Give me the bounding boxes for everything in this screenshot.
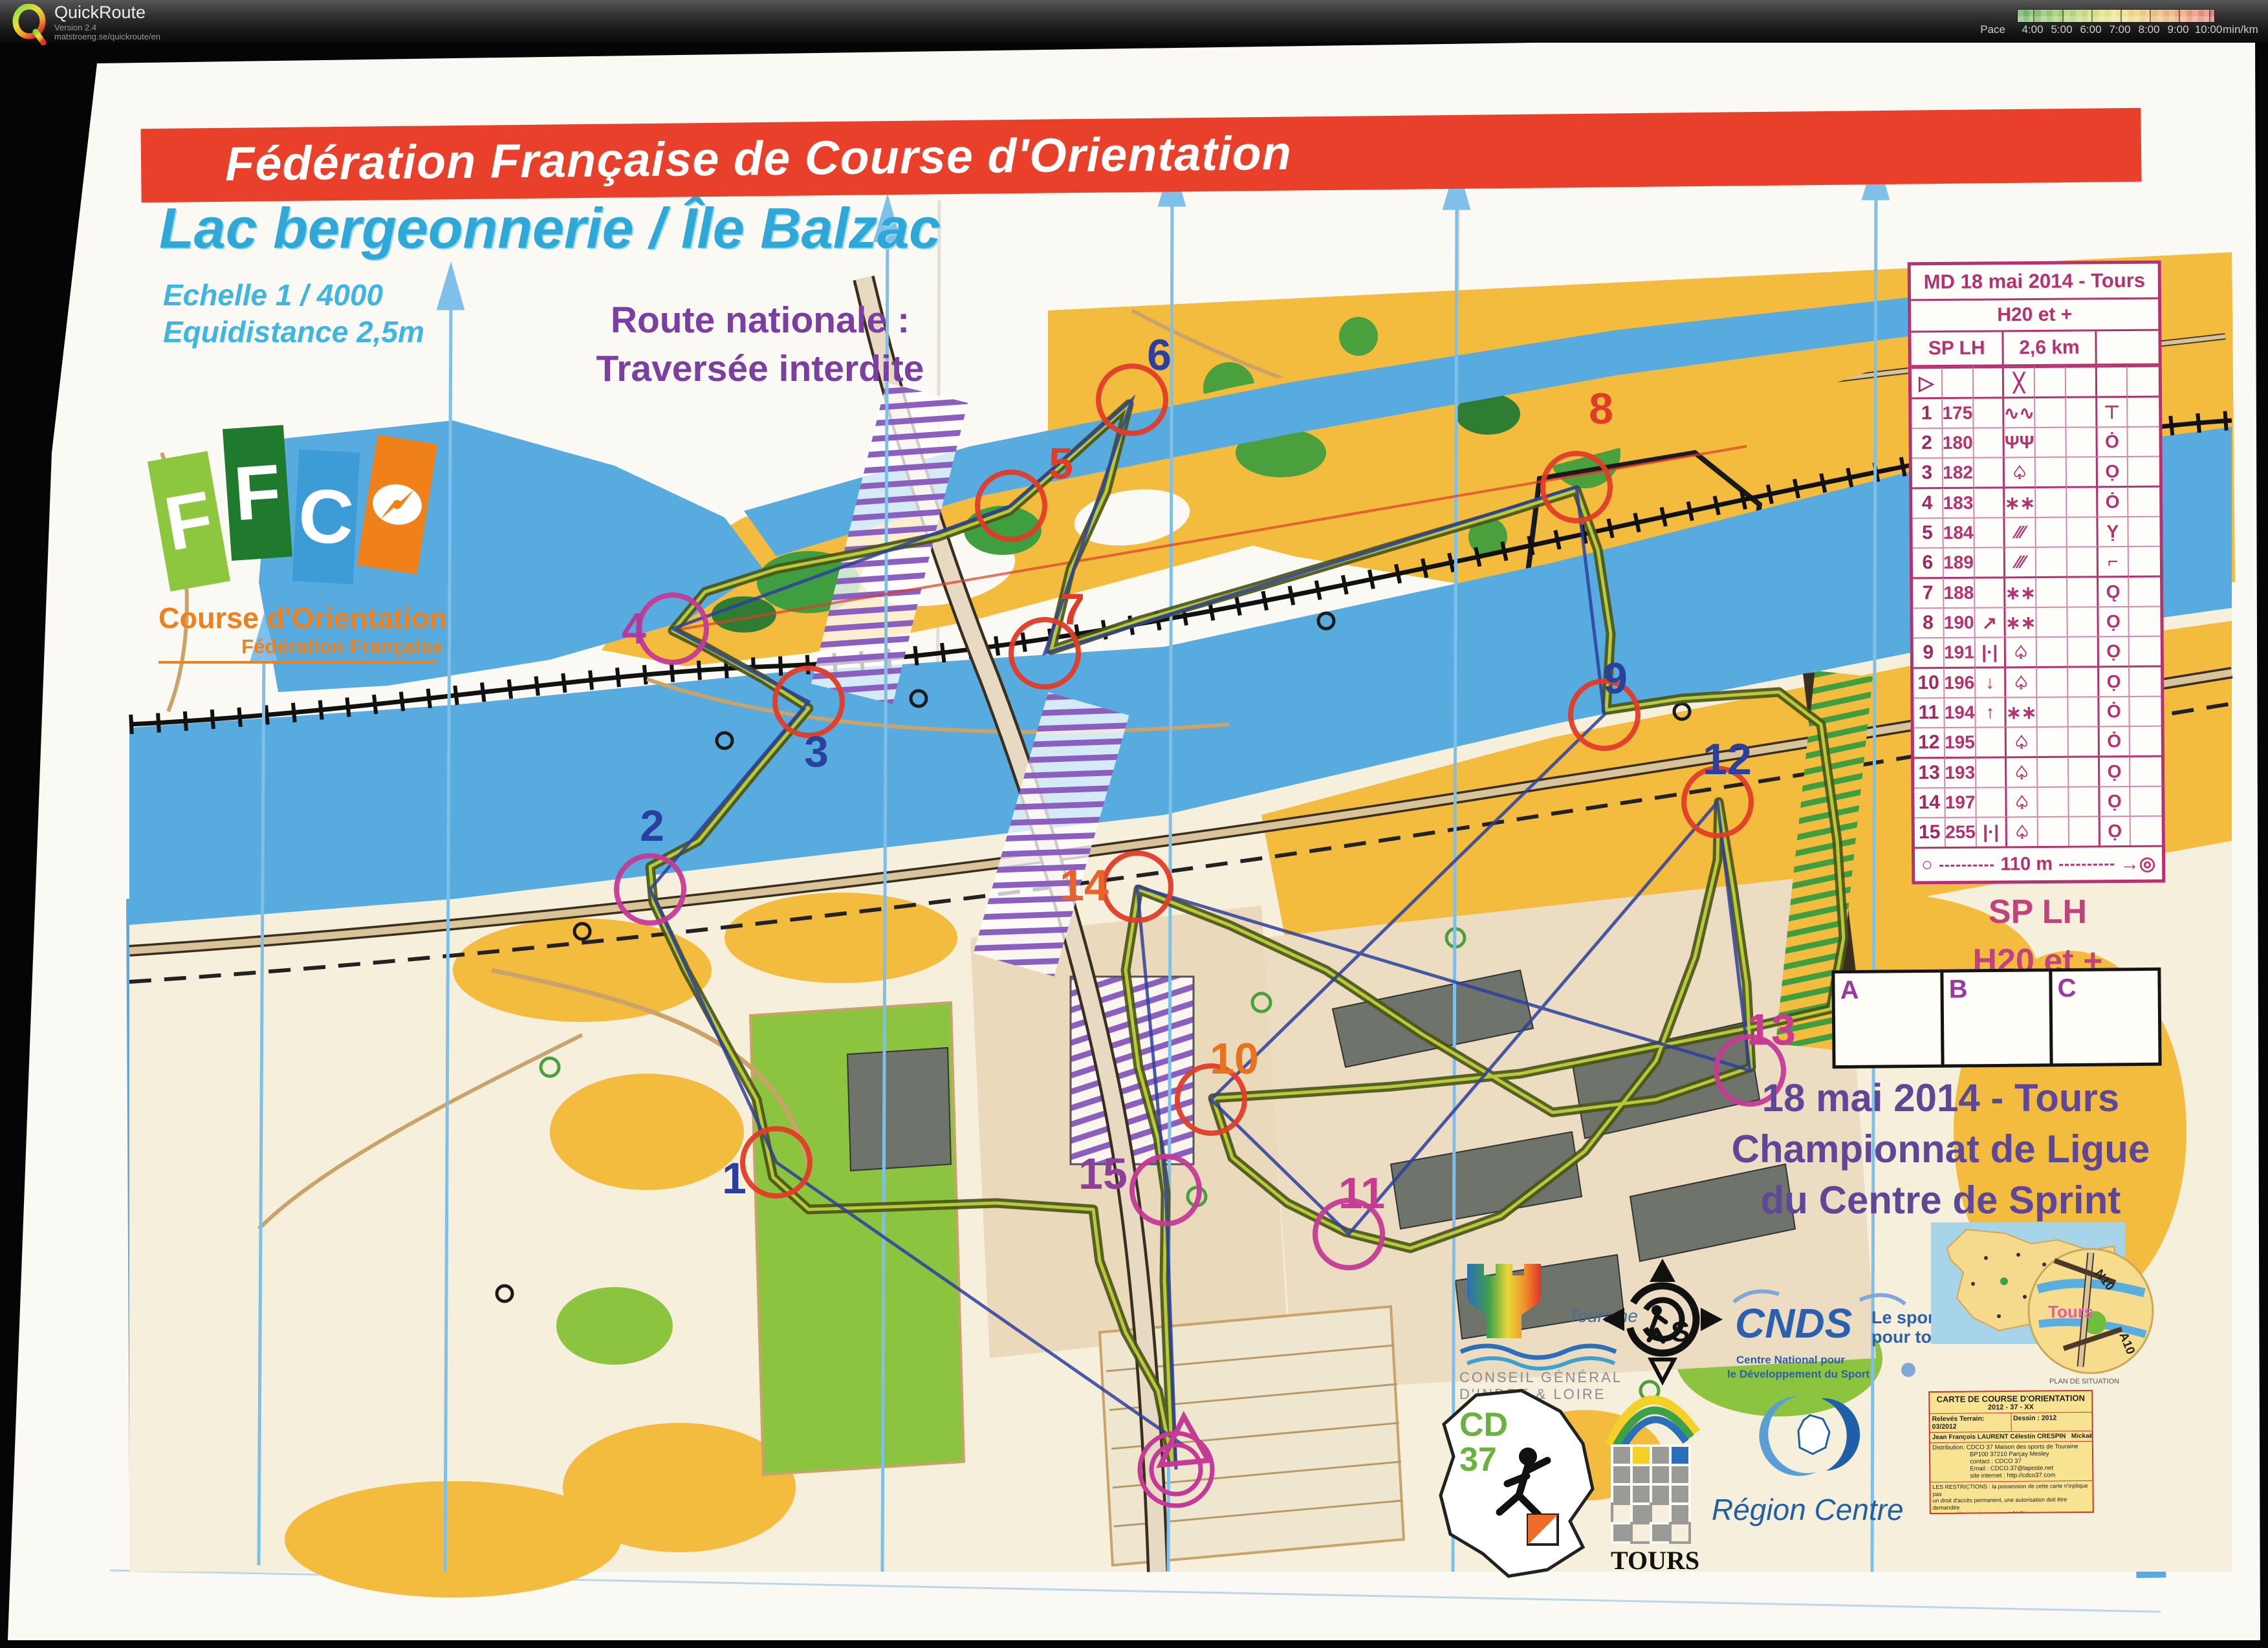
credits-title: CARTE DE COURSE D'ORIENTATION [1930, 1393, 2091, 1404]
credits-distribution: Distribution: CDCO 37 Maison des sports … [1930, 1442, 2093, 1482]
punch-boxes: A B C [1831, 968, 2158, 1068]
credits-authors: Jean François LAURENT Célestin CRESPIN [1932, 1433, 2066, 1441]
map-scale: Echelle 1 / 4000 [163, 277, 424, 314]
app-version: Version 2.4 [54, 23, 96, 32]
control-number: 2 [640, 801, 664, 851]
map-title: Lac bergeonnerie / Île Balzac [159, 195, 941, 261]
card-row: 4183∗∗Ȯ [1912, 486, 2159, 518]
card-row: 13193♤Ọ [1914, 755, 2161, 788]
finish-distance: 110 m [2000, 853, 2053, 875]
control-number: 15 [1078, 1149, 1128, 1198]
card-row: 9191|·|♤Ọ [1914, 636, 2161, 667]
credits-restrictions: LES RESTRICTIONS : la possession de cett… [1930, 1481, 2093, 1514]
app-name: QuickRoute [54, 3, 146, 23]
card-category: H20 et + [1911, 299, 2158, 333]
quickroute-logo-icon [10, 4, 49, 45]
app-titlebar: QuickRoute Version 2.4 matstroeng.se/qui… [0, 0, 2268, 43]
card-row: 10196↓♤Ọ [1914, 666, 2161, 698]
quickroute-window: 123456789101112131415 QuickRoute Version… [0, 0, 2268, 1648]
pace-tick: 10:00 [2195, 23, 2223, 36]
card-start-row: ▷ ╳ [1912, 365, 2159, 398]
region-name: Région Centre [1712, 1493, 1904, 1526]
control-number: 7 [1060, 585, 1085, 634]
situation-inset: N10 A10 Tours PLAN DE SITUATION [1928, 1219, 2174, 1389]
ffco-logo: F F C Course d'Orientation Fédération Fr… [158, 415, 447, 669]
control-number: 14 [1060, 861, 1109, 910]
control-number: 13 [1747, 1005, 1796, 1054]
punch-box-a: A [1831, 970, 1944, 1069]
punch-box-b: B [1940, 968, 2053, 1068]
ffco-caption2: Fédération Française [158, 635, 443, 658]
pace-gradient-bar [2017, 9, 2215, 23]
control-number: 12 [1703, 735, 1752, 784]
punch-box-c: C [2049, 968, 2161, 1067]
card-row: 14197♤Ọ [1914, 786, 2161, 818]
control-number: 6 [1147, 331, 1172, 380]
card-row: 8190↗∗∗Ọ [1913, 606, 2160, 638]
tours-name: TOURS [1611, 1546, 1699, 1575]
pace-tick: 9:00 [2167, 23, 2188, 36]
control-number: 1 [722, 1154, 747, 1203]
control-number: 8 [1589, 384, 1613, 433]
cnds-acronym: CNDS [1735, 1300, 1853, 1347]
control-number: 9 [1603, 654, 1628, 703]
region-centre-logo: Région Centre [1701, 1384, 1921, 1539]
cots-compass-logo: S [1595, 1253, 1730, 1396]
svg-text:pour tous: pour tous [1871, 1327, 1931, 1347]
svg-text:37: 37 [1459, 1441, 1497, 1479]
credits-drawing: Dessin : 2012 [2011, 1413, 2092, 1431]
pace-tick: 6:00 [2080, 23, 2101, 36]
card-row: 7188∗∗Ǫ [1913, 576, 2160, 608]
credits-box: CARTE DE COURSE D'ORIENTATION 2012 - 37 … [1928, 1390, 2094, 1514]
card-row: 12195♤Ȯ [1914, 726, 2161, 757]
map-scale-block: Echelle 1 / 4000 Equidistance 2,5m [163, 277, 424, 351]
control-number: 5 [1049, 439, 1073, 488]
route-warning: Route nationale : Traversée interdite [475, 296, 1045, 393]
ffco-tile-f2: F [223, 425, 292, 561]
card-control-rows: 1175∿∿⊤2180ΨΨȮ3182♤Ọ4183∗∗Ȯ5184∕∕∕Ỵ6189∕… [1912, 396, 2162, 847]
tours-logo: TOURS [1593, 1378, 1703, 1578]
cd37-logo: CD 37 [1431, 1385, 1599, 1579]
card-length: 2,6 km [2004, 331, 2097, 364]
pace-tick: 8:00 [2138, 23, 2159, 36]
control-description-card: MD 18 mai 2014 - Tours H20 et + SP LH 2,… [1908, 261, 2166, 885]
credits-survey: Relevés Terrain: 03/2012 [1930, 1413, 2011, 1432]
card-row: 6189∕∕∕⌐ [1913, 546, 2160, 578]
card-row: 11194↑∗∗Ȯ [1914, 696, 2161, 728]
compass-icon [367, 478, 428, 531]
event-title: 18 mai 2014 - Tours Championnat de Ligue… [1718, 1072, 2163, 1226]
ffco-underline [158, 661, 437, 664]
card-course-row: SP LH 2,6 km [1911, 331, 2158, 367]
ffco-caption1: Course d'Orientation [158, 602, 447, 635]
card-row: 1175∿∿⊤ [1912, 396, 2159, 428]
control-number: 4 [622, 604, 646, 653]
pace-tick: 4:00 [2022, 23, 2043, 36]
card-row: 5184∕∕∕Ỵ [1912, 516, 2159, 548]
svg-text:CD: CD [1459, 1406, 1508, 1444]
card-row: 2180ΨΨȮ [1912, 426, 2159, 458]
svg-text:le Développement du Sport: le Développement du Sport [1727, 1368, 1870, 1380]
card-row: 15255|·|♤Ọ [1915, 816, 2162, 847]
pace-legend-label: Pace [1960, 23, 2005, 36]
card-finish-row: ○ 110 m →◎ [1915, 845, 2162, 882]
cots-letter: S [1671, 1316, 1690, 1348]
pace-tick: 7:00 [2109, 23, 2130, 36]
card-row: 3182♤Ọ [1912, 456, 2159, 488]
inset-city: Tours [2048, 1302, 2093, 1321]
control-number: 11 [1338, 1169, 1385, 1218]
cnds-logo: CNDS Le sport pour tous Centre National … [1714, 1273, 1931, 1396]
inset-caption: PLAN DE SITUATION [2049, 1378, 2119, 1385]
control-number: 3 [804, 727, 829, 776]
start-feature: ╳ [2004, 366, 2035, 396]
app-url: matstroeng.se/quickroute/en [54, 32, 160, 41]
pace-unit: min/km [2223, 23, 2258, 36]
card-title: MD 18 mai 2014 - Tours [1911, 264, 2158, 301]
card-course: SP LH [1911, 332, 2004, 365]
ffco-tile-c: C [292, 450, 360, 585]
pace-tick: 5:00 [2051, 23, 2072, 36]
svg-text:Centre National pour: Centre National pour [1736, 1354, 1846, 1366]
map-equidistance: Equidistance 2,5m [163, 314, 424, 351]
credits-author2: Mickaël BLANCHARD [2071, 1432, 2094, 1440]
svg-text:Le sport: Le sport [1871, 1308, 1931, 1327]
ffco-tile-o [357, 435, 438, 574]
ffco-tile-f1: F [147, 451, 230, 591]
start-symbol: ▷ [1912, 367, 1943, 397]
control-number: 10 [1210, 1034, 1259, 1083]
